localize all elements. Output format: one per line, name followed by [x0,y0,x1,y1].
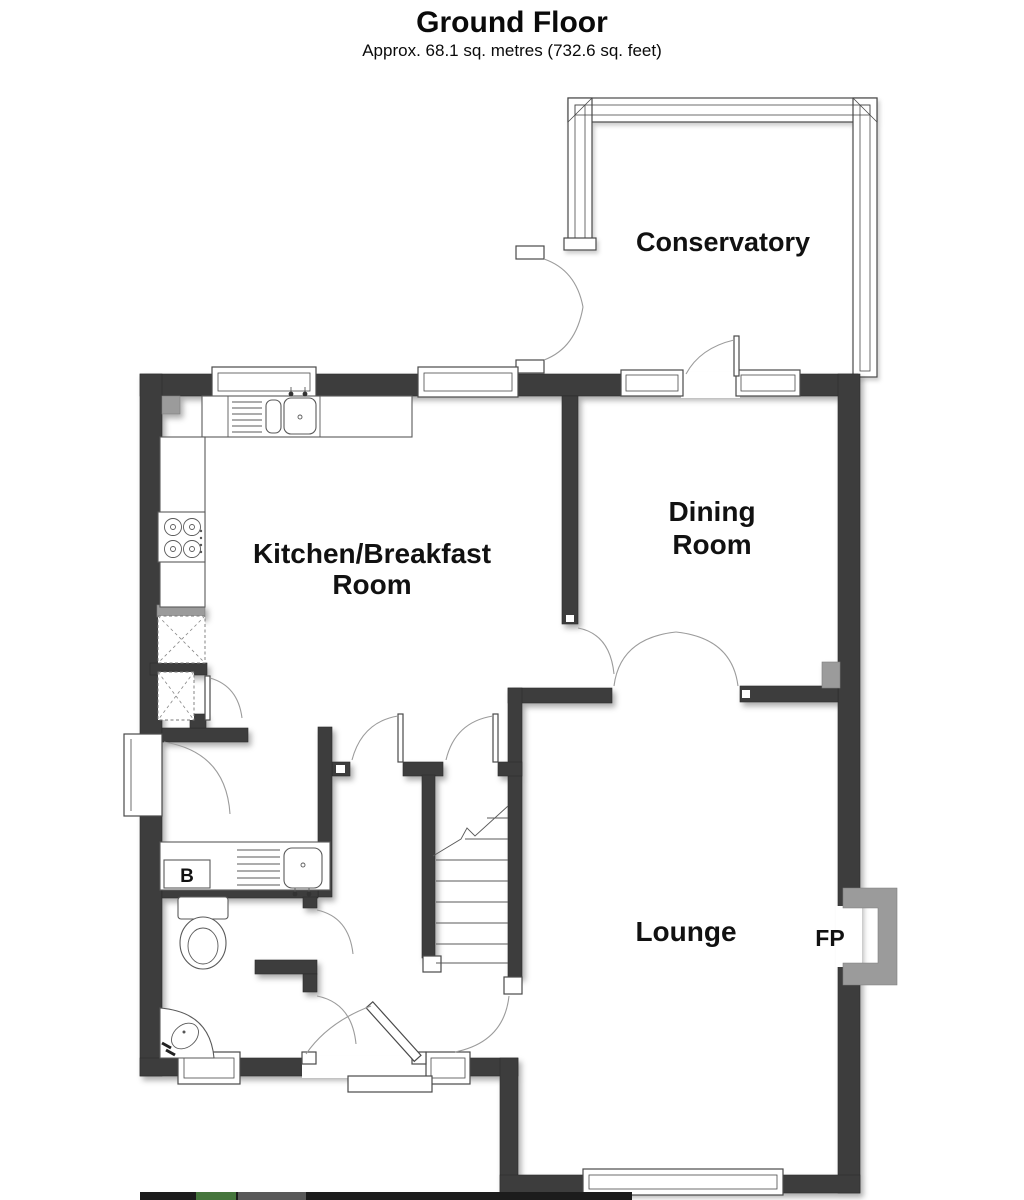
door-dining-to-conservatory [686,336,739,376]
wall-lounge-west-outer [500,1058,518,1193]
label-kitchen-line2: Room [332,569,411,600]
front-door-gap [302,1056,426,1078]
stairs-break-line [433,806,508,856]
wall-dining-lounge [740,686,838,702]
wall-utility-north [162,728,248,742]
front-porch-step [348,1076,432,1092]
french-door-swing-top [544,259,583,307]
label-lounge: Lounge [635,916,736,947]
label-fireplace: FP [815,925,844,951]
dining-conservatory-door-gap [681,372,740,398]
wall-wc-jamb-lower [303,974,317,992]
conservatory-wall-top [568,98,877,122]
door-jamb-post-lounge [504,977,522,994]
jamb-tick-3 [566,615,574,622]
stairs-newel-post [423,956,441,972]
french-door-swing-bottom [544,307,583,360]
wall-kitchen-hall-pier [403,762,443,776]
toilet [178,897,228,969]
wall-hall-lounge [508,688,612,703]
pillar-top-left [162,396,180,414]
window-dining-1 [621,370,683,396]
wall-kitchen-hall-east [498,762,522,776]
wc-fixtures [160,897,228,1058]
door-wc-upper [317,910,353,954]
window-lounge [583,1169,783,1195]
window-dining-2 [736,370,800,396]
appliance-space-1 [158,616,205,663]
corner-basin [160,1008,214,1058]
wall-left [140,374,162,1076]
label-conservatory: Conservatory [636,227,810,257]
window-kitchen-1 [212,367,316,397]
side-door [124,734,230,816]
french-door-leaf-bottom [516,360,544,373]
wall-kitchen-dining [562,396,578,624]
wall-stairs-left [422,775,435,958]
door-stairs-to-kitchen [446,714,498,762]
double-doors-dining-lounge [614,632,738,686]
jamb-tick-1 [336,765,345,773]
appliance-space-2 [158,672,194,720]
door-hall-to-kitchen [352,714,403,762]
door-hall-to-lounge [423,956,522,1052]
floorplan-page: Ground Floor Approx. 68.1 sq. metres (73… [0,0,1024,1200]
front-door-leaf [366,1002,421,1062]
front-door [302,1002,432,1092]
staircase [433,806,508,963]
french-door-leaf-top [516,246,544,259]
label-dining-line1: Dining [668,496,755,527]
pillar-dining-corner [822,662,840,688]
conservatory-french-doors [516,246,583,373]
label-dining-line2: Room [672,529,751,560]
logo-strip [140,1192,632,1200]
door-kitchen-to-dining [578,628,614,674]
window-hall [426,1052,470,1084]
doors [124,336,739,1092]
wall-wc-jamb-upper [303,897,317,908]
conservatory-wall-left [568,98,592,248]
floorplan-drawing: Conservatory Dining Room Kitchen/Breakfa… [0,0,1024,1200]
wall-right [838,374,860,1193]
wall-wc-lobby [255,960,317,974]
conservatory-door-sill [564,238,596,250]
label-boiler: B [180,866,194,887]
window-kitchen-2 [418,367,518,397]
door-kitchen-to-utility [205,676,242,720]
door-wc-lower [317,996,356,1044]
jamb-tick-2 [742,690,750,698]
conservatory-wall-right [853,98,877,377]
kitchen-hob [158,512,205,562]
label-kitchen-line1: Kitchen/Breakfast [253,538,491,569]
wall-stairs-right [508,688,522,977]
